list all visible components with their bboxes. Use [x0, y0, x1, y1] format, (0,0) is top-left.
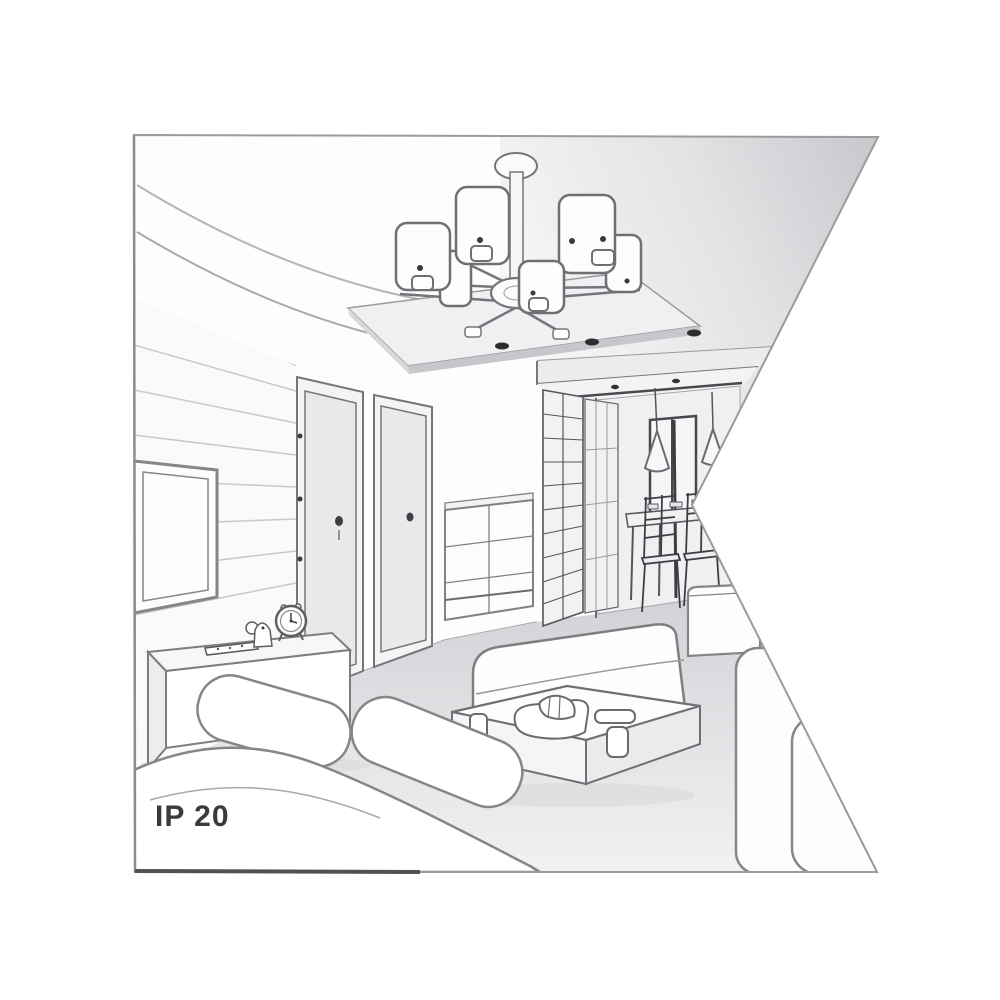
ip-rating-label: IP 20 — [155, 802, 230, 832]
door-handle — [335, 516, 343, 526]
cup — [607, 727, 628, 757]
room-illustration: IP 20 — [0, 0, 1000, 1000]
recessed-spotlight — [687, 330, 701, 337]
tv — [134, 461, 217, 613]
chandelier-shade — [396, 223, 450, 290]
hallway-spotlight — [611, 385, 619, 389]
recessed-spotlight — [585, 339, 599, 346]
dresser — [445, 493, 533, 620]
door-handle — [407, 513, 414, 522]
recessed-spotlight — [495, 343, 509, 350]
wardrobe-grid — [543, 390, 618, 626]
chandelier-shade — [559, 195, 615, 273]
hallway-spotlight — [672, 379, 680, 383]
door-2 — [374, 395, 432, 667]
alarm-clock — [276, 604, 306, 641]
chandelier-shade — [519, 261, 564, 313]
tray — [595, 710, 635, 723]
chandelier-shade — [456, 187, 509, 264]
interior-line-drawing — [0, 0, 1000, 1000]
right-sofa — [792, 716, 922, 874]
croissant — [540, 696, 575, 719]
